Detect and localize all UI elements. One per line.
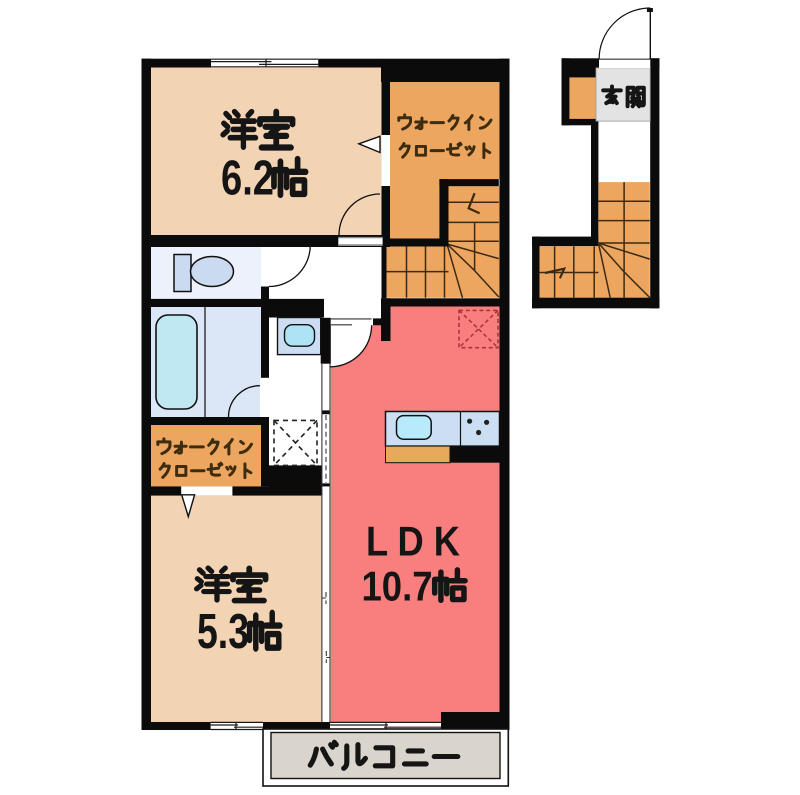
svg-text:L D K: L D K [366, 518, 460, 565]
svg-text:6.2: 6.2 [221, 152, 274, 206]
svg-text:5.3: 5.3 [197, 605, 249, 659]
svg-text:10.7: 10.7 [362, 562, 433, 609]
